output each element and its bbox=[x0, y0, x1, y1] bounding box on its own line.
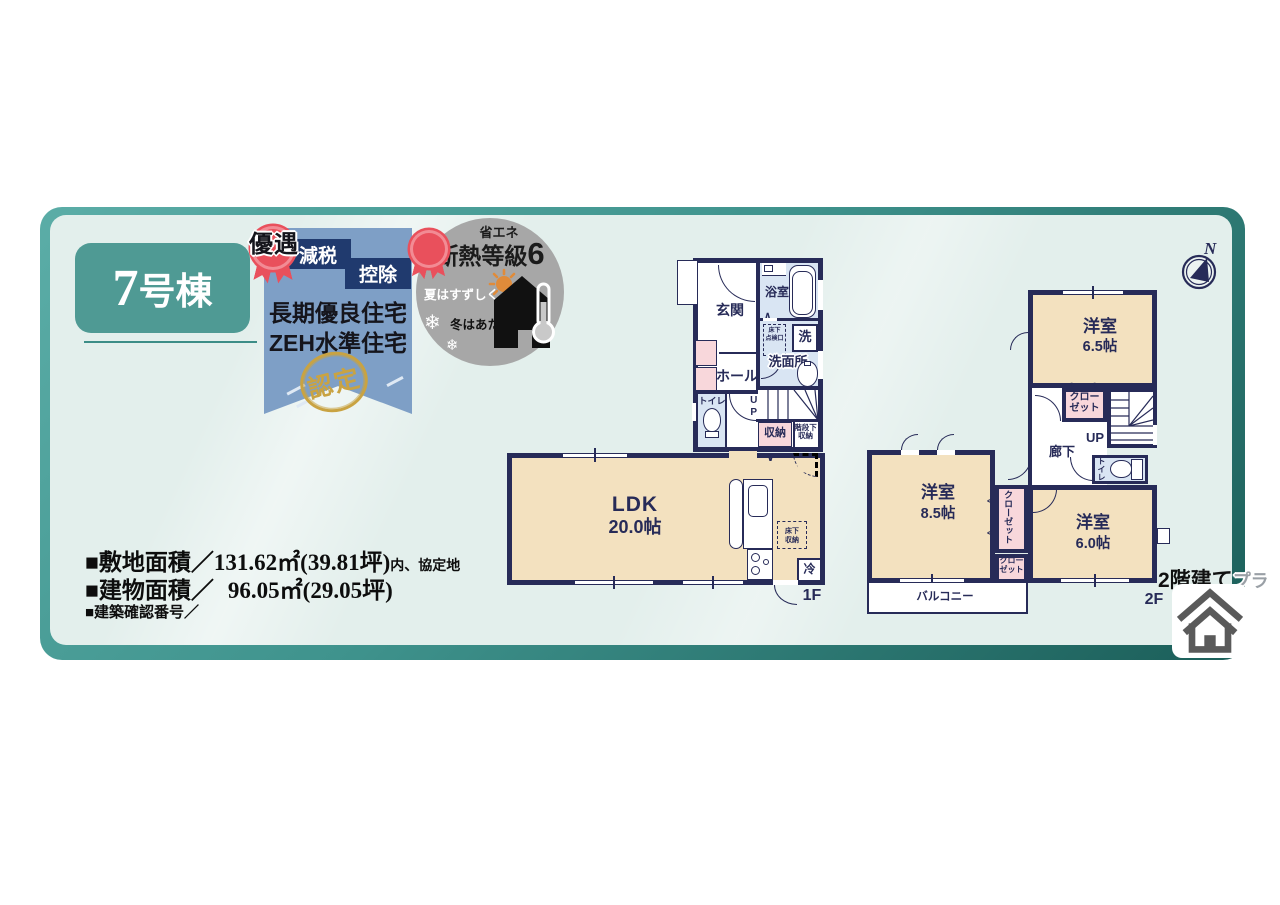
window-tick bbox=[1092, 286, 1094, 299]
floorplan-1f: 浴室 ∧ 洗 床下 点検口 洗面所 玄関 ホール トイレ UP 収納 階段下 bbox=[505, 255, 837, 617]
shoe-cabinet bbox=[695, 340, 717, 366]
burner bbox=[751, 566, 760, 575]
toilet-base bbox=[705, 431, 719, 438]
ldk-size-label: 20.0帖 bbox=[575, 517, 695, 537]
folding-door-mark: ∧ bbox=[1091, 381, 1098, 390]
confirmation-line: ■建築確認番号／ bbox=[85, 601, 199, 622]
folding-door-mark: < bbox=[987, 529, 992, 538]
toilet-icon bbox=[703, 408, 721, 432]
unit-number: 7 bbox=[113, 259, 139, 318]
toilet-label-2f: トイレ bbox=[1096, 457, 1105, 481]
doorway-gap bbox=[901, 450, 919, 455]
compass-icon: N bbox=[1176, 238, 1228, 296]
stair-treads bbox=[758, 390, 818, 420]
toilet-tank bbox=[1131, 459, 1143, 480]
closet-vertical-label: クローゼット bbox=[1003, 490, 1013, 544]
door-swing-mark: ∨ bbox=[766, 453, 775, 464]
bedroom-65-label: 洋室 bbox=[1070, 317, 1130, 336]
up-label-1f: UP bbox=[748, 395, 759, 419]
floorplan-2f: 洋室 6.5帖 クロー ゼット ∧ ∧ 廊下 UP トイレ 洋室 8.5帖 クロ… bbox=[865, 285, 1180, 630]
window-tick bbox=[712, 576, 714, 589]
window bbox=[1153, 425, 1157, 445]
closet-2-label: クロー ゼット bbox=[995, 557, 1028, 575]
balcony-label: バルコニー bbox=[885, 591, 1005, 604]
folding-door-mark: < bbox=[987, 497, 992, 506]
building-area-label: ■建物面積／ bbox=[85, 578, 214, 603]
window bbox=[818, 280, 823, 310]
inspection-hatch: 床下 点検口 bbox=[763, 324, 786, 356]
floor-label-1f: 1F bbox=[797, 587, 827, 605]
unit-underline bbox=[84, 341, 257, 343]
porch bbox=[677, 260, 698, 305]
up-label-2f: UP bbox=[1077, 431, 1113, 446]
bath-label: 浴室 bbox=[759, 286, 795, 299]
bathtub-inner bbox=[792, 271, 813, 315]
doorway-gap bbox=[937, 450, 955, 455]
bedroom-60-size: 6.0帖 bbox=[1053, 536, 1133, 552]
bedroom-60-label: 洋室 bbox=[1053, 513, 1133, 532]
door-arc bbox=[774, 585, 797, 605]
toilet-icon bbox=[1110, 460, 1132, 478]
building-area-value: 96.05㎡(29.05坪) bbox=[228, 578, 393, 603]
cert-line-1: 長期優良住宅 bbox=[262, 294, 414, 328]
bedroom-85-size: 8.5帖 bbox=[898, 506, 978, 522]
stairs-2f bbox=[1107, 388, 1157, 448]
storage-label: 収納 bbox=[758, 427, 792, 439]
stove-icon bbox=[747, 549, 773, 580]
window-swing-arc bbox=[901, 434, 918, 450]
award-rosette-icon bbox=[410, 230, 448, 268]
floor-storage-hatch: 床下 収納 bbox=[777, 521, 807, 549]
window bbox=[692, 403, 696, 421]
burner bbox=[763, 559, 769, 565]
snowflake-icon: ❄ bbox=[446, 336, 459, 354]
ldk-label: LDK bbox=[575, 493, 695, 517]
burner bbox=[751, 553, 760, 562]
north-label: N bbox=[1203, 239, 1217, 258]
stairs-1f bbox=[758, 390, 818, 420]
bath-counter-box bbox=[764, 265, 773, 272]
folding-door-mark: ∧ bbox=[764, 311, 771, 320]
genkan-label: 玄関 bbox=[703, 303, 757, 319]
kitchen-sink bbox=[748, 485, 768, 517]
window-jut bbox=[1157, 528, 1170, 544]
toilet-label-1f: トイレ bbox=[697, 396, 727, 406]
sink-tap bbox=[804, 361, 811, 366]
wall bbox=[1028, 388, 1032, 485]
cert-stamp-label: 認定 bbox=[303, 358, 364, 406]
building-area-line: ■建物面積／96.05㎡(29.05坪) bbox=[85, 571, 393, 605]
window-tick bbox=[1094, 574, 1096, 587]
closet-1-label: クロー ゼット bbox=[1062, 392, 1107, 414]
step-line bbox=[719, 352, 756, 354]
laundry-label: 洗 bbox=[792, 330, 818, 345]
bedroom-65-size: 6.5帖 bbox=[1070, 339, 1130, 355]
fridge-label: 冷 bbox=[797, 563, 822, 576]
yuuguu-label: 優遇 bbox=[243, 224, 305, 259]
door-arc bbox=[1010, 332, 1028, 350]
window-tick bbox=[594, 448, 596, 462]
bedroom-85-label: 洋室 bbox=[898, 483, 978, 502]
house-outline-icon bbox=[1174, 586, 1246, 656]
stair-treads bbox=[1111, 392, 1153, 444]
window-swing-arc bbox=[937, 434, 954, 450]
snowflake-icon: ❄ bbox=[424, 310, 441, 335]
understairs-label: 階段下 収納 bbox=[792, 424, 819, 441]
deduction-badge: 控除 bbox=[345, 258, 411, 289]
window-tick bbox=[613, 576, 615, 589]
window bbox=[818, 351, 823, 379]
kitchen-counter bbox=[729, 479, 743, 549]
doorway-gap bbox=[729, 451, 757, 459]
folding-door-mark: ∧ bbox=[1068, 381, 1075, 390]
hall-label: ホール bbox=[711, 369, 763, 385]
deduction-label: 控除 bbox=[359, 260, 397, 287]
unit-badge: 7号棟 bbox=[75, 243, 250, 333]
site-area-note: 内、協定地 bbox=[390, 559, 460, 574]
unit-suffix: 号棟 bbox=[139, 261, 213, 315]
